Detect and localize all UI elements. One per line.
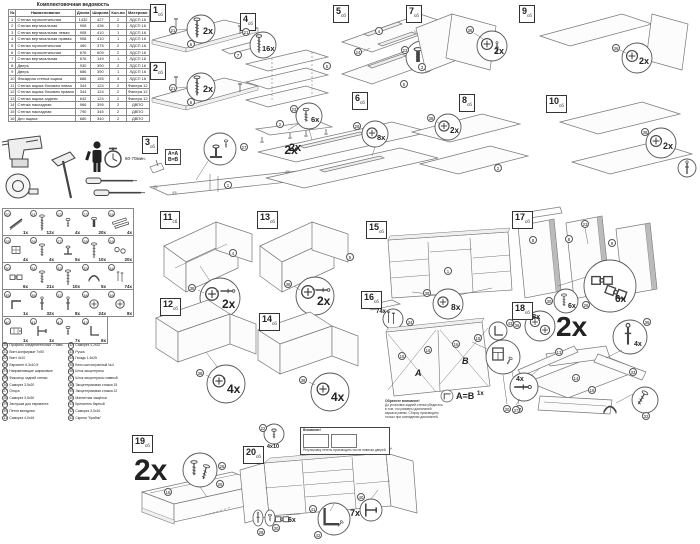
legend-name: Эксцентриковая стяжка 12 xyxy=(75,389,117,393)
panel xyxy=(256,121,332,135)
drill-icon xyxy=(2,136,42,167)
rod-icon xyxy=(10,219,22,230)
table-cell: ЛДСП 16 xyxy=(126,29,149,36)
legend-item: 43Скрепа "Крабик" xyxy=(68,415,134,422)
pin-head xyxy=(174,18,177,19)
legend-item: 32Саморез 4,2х32 xyxy=(68,342,134,349)
legend-num: 28 xyxy=(2,395,8,402)
hardware-qty: 8x xyxy=(127,311,132,316)
hardware-legend-col1: 20Профиль соединительный 776мм.21Винт-ко… xyxy=(2,342,68,421)
table-cell: 10 xyxy=(9,75,16,82)
panel xyxy=(386,453,417,513)
hardware-cell: 3632x xyxy=(29,290,56,317)
parts-table-grid: №НаименованиеДлинаШиринаКол-воМатериал 1… xyxy=(8,9,150,122)
legend-num: 41 xyxy=(68,401,74,408)
legend-name: Профиль соединительный 776мм. xyxy=(9,343,63,347)
line xyxy=(206,352,218,368)
qty-label: 4x xyxy=(516,376,524,383)
hardware-cell: 401x xyxy=(3,317,30,344)
legend-num: 33 xyxy=(68,349,74,356)
qty-label: 8x xyxy=(532,312,541,321)
table-row: 14Стенка накладная9663952ДВПО xyxy=(9,102,150,109)
table-cell: 149 xyxy=(91,56,110,63)
qty-label: A xyxy=(414,368,422,378)
table-cell: 1 xyxy=(110,69,127,76)
hardware-qty: 12x xyxy=(46,230,54,235)
legend-name: Скрепа "Крабик" xyxy=(75,416,101,420)
hardware-qty: 1x xyxy=(23,311,28,316)
table-cell: 908 xyxy=(75,36,91,43)
table-cell: 3 xyxy=(9,29,16,36)
table-cell: 344 xyxy=(75,82,91,89)
hardware-qty: 1x xyxy=(23,230,28,235)
hardware-qty: 21x xyxy=(46,284,54,289)
parts-col-header: Кол-во xyxy=(110,10,127,17)
hardware-legend: 20Профиль соединительный 776мм.21Винт-ко… xyxy=(2,342,138,421)
panel xyxy=(230,314,256,354)
table-cell: Дверь xyxy=(16,62,75,69)
hardware-qty: 4x xyxy=(127,230,132,235)
hardware-cell: 378x xyxy=(55,290,82,317)
hammer-icon xyxy=(52,152,75,198)
qty-label: 4x xyxy=(634,341,642,348)
hardware-cell: 3824x xyxy=(81,290,108,317)
legend-item: 29Заглушка для евровинта xyxy=(2,401,68,408)
screwdriver-flat-icon xyxy=(94,190,145,196)
hardware-cell: 2112x xyxy=(29,209,56,236)
table-row: 8Дверь9303902ЛДСП 16 xyxy=(9,62,150,69)
table-cell: 14 xyxy=(9,102,16,109)
hardware-cell: 275x xyxy=(55,236,82,263)
line xyxy=(177,87,188,88)
table-cell: Стенка ящика боковая правая xyxy=(16,89,75,96)
qty-label: 6x xyxy=(615,294,627,305)
legend-name: Саморез 4,0х16 xyxy=(9,416,34,420)
pin-head xyxy=(238,83,241,84)
table-cell: 340 xyxy=(91,115,110,122)
legend-item: 31Саморез 4,0х16 xyxy=(2,415,68,422)
table-cell: 966 xyxy=(75,102,91,109)
table-cell: 686 xyxy=(75,75,91,82)
legend-num: 35 xyxy=(68,362,74,369)
table-cell: 375 xyxy=(91,42,110,49)
hardware-cell: 411x xyxy=(29,317,56,344)
legend-name: Ключ шестигранный №4 xyxy=(75,363,113,367)
legend-name: Петля вкладная xyxy=(9,409,34,413)
table-cell: Стенка вертикальная xyxy=(16,56,75,63)
callout-circle xyxy=(318,503,350,535)
screwdriver-cross-icon xyxy=(86,178,137,184)
legend-num: 40 xyxy=(68,395,74,402)
table-cell: 395 xyxy=(91,102,110,109)
cam-icon xyxy=(90,300,99,308)
qty-label: 2x xyxy=(134,454,168,487)
screw-long-icon xyxy=(91,243,96,258)
legend-name: Шток эксцентрика главный xyxy=(75,376,117,380)
hardware-cell: 335x xyxy=(81,263,108,290)
handle-icon xyxy=(89,276,99,282)
table-cell: ЛДСП 16 xyxy=(126,75,149,82)
legend-name: Магнитная защёлка xyxy=(75,396,106,400)
panel xyxy=(538,396,612,414)
pin-head xyxy=(238,25,241,26)
qty-label: 2x xyxy=(663,141,673,151)
pin-icon xyxy=(40,297,44,310)
hinge-icon xyxy=(10,275,22,280)
hardware-cell: 398x xyxy=(107,290,134,317)
legend-num: 37 xyxy=(68,375,74,382)
legend-name: Крепитель барный xyxy=(75,402,104,406)
table-cell: 345 xyxy=(91,108,110,115)
table-cell: ЛДСП 16 xyxy=(126,49,149,56)
hardware-cell: 201x xyxy=(3,209,30,236)
table-row: 10Фасадная стенка ящика6861553ЛДСП 16 xyxy=(9,75,150,82)
panel xyxy=(388,232,512,298)
legend-num: 22 xyxy=(2,355,8,362)
table-cell: 11 xyxy=(9,82,16,89)
qty-label: 6x xyxy=(568,303,576,310)
legend-name: Винт-конфирмат 7х50 xyxy=(9,350,44,354)
table-cell: 680 xyxy=(75,115,91,122)
legend-name: Ручка xyxy=(75,350,84,354)
parts-table: Комплектовочная ведомость №НаименованиеД… xyxy=(8,2,138,122)
table-cell: 155 xyxy=(91,75,110,82)
euro-icon xyxy=(91,217,96,227)
legend-num: 24 xyxy=(2,368,8,375)
legend-name: Эксцентриковая стяжка 15 xyxy=(75,383,117,387)
parts-table-head: №НаименованиеДлинаШиринаКол-воМатериал xyxy=(9,10,150,17)
table-cell: 908 xyxy=(75,29,91,36)
pin-head xyxy=(174,76,177,77)
hardware-qty: 4x xyxy=(75,230,80,235)
hardware-cell: 244x xyxy=(107,209,134,236)
table-cell: Фанера 12 xyxy=(126,82,149,89)
panel xyxy=(646,14,688,70)
parts-col-header: Наименование xyxy=(16,10,75,17)
table-cell: 609 xyxy=(91,49,110,56)
table-cell: ЛДСП 16 xyxy=(126,42,149,49)
qty-label: 8x xyxy=(377,133,386,142)
hardware-cell: 3121x xyxy=(29,263,56,290)
table-cell: 1432 xyxy=(75,16,91,23)
table-row: 11Стенка ящика боковая левая3441242Фанер… xyxy=(9,82,150,89)
hardware-cell: 3474x xyxy=(107,263,134,290)
legend-num: 21 xyxy=(2,349,8,356)
table-cell: 12 xyxy=(9,89,16,96)
cam-icon xyxy=(116,300,125,308)
qty-label: 2x xyxy=(556,311,588,342)
screw-small-icon xyxy=(66,218,70,227)
hinge-icon xyxy=(275,517,288,522)
hardware-qty: 5x xyxy=(75,257,80,262)
hardware-legend-col2: 32Саморез 4,2х3233Ручка34Гвоздь 1,6х2535… xyxy=(68,342,134,421)
table-cell: Стенка накладная xyxy=(16,102,75,109)
legend-name: Саморез 3,5х20 xyxy=(9,383,34,387)
legend-name: Заглушка для евровинта xyxy=(9,402,48,406)
parts-col-header: Материал xyxy=(126,10,149,17)
table-cell: Стенка ящика задняя xyxy=(16,95,75,102)
table-cell: 930 xyxy=(75,62,91,69)
table-cell: 2 xyxy=(110,49,127,56)
table-cell: 390 xyxy=(91,69,110,76)
legend-item: 24Направляющие шариковые xyxy=(2,368,68,375)
confirmat-icon xyxy=(40,215,45,231)
hardware-cell: 254x xyxy=(3,236,30,263)
legend-item: 21Винт-конфирмат 7х50 xyxy=(2,349,68,356)
legend-num: 29 xyxy=(2,401,8,408)
legend-num: 23 xyxy=(2,362,8,369)
table-cell: 2 xyxy=(110,102,127,109)
table-row: 4Стенка вертикальная правая9084101ЛДСП 1… xyxy=(9,36,150,43)
screw-long-icon xyxy=(65,270,70,285)
table-cell: 436 xyxy=(91,23,110,30)
callout-circle xyxy=(441,390,453,402)
table-cell: 13 xyxy=(9,95,16,102)
foot-glyph xyxy=(325,133,328,135)
line xyxy=(309,129,312,140)
table-cell: ЛДСП 16 xyxy=(126,69,149,76)
table-cell: ЛДСП 16 xyxy=(126,56,149,63)
table-cell: Стенка накладная xyxy=(16,108,75,115)
hardware-qty: 5x xyxy=(101,284,106,289)
block-icon xyxy=(12,247,20,254)
table-cell: 460 xyxy=(75,42,91,49)
legend-num: 31 xyxy=(2,415,8,422)
table-row: 2Стенка вертикальная9084362ЛДСП 16 xyxy=(9,23,150,30)
hardware-cell: 306x xyxy=(3,263,30,290)
table-cell: ЛДСП 16 xyxy=(126,36,149,43)
table-row: 7Стенка вертикальная6761491ЛДСП 16 xyxy=(9,56,150,63)
legend-name: Винт 4х10 xyxy=(9,356,25,360)
nails-icon xyxy=(117,272,124,282)
legend-item: 37Шток эксцентрика главный xyxy=(68,375,134,382)
table-cell: 2 xyxy=(110,23,127,30)
legend-item: 26Саморез 3,5х20 xyxy=(2,382,68,389)
callout-circle xyxy=(204,133,236,165)
panel xyxy=(332,326,358,366)
legend-item: 23Евровинт 6,3х10,5 xyxy=(2,362,68,369)
table-cell: ЛДСП 16 xyxy=(126,23,149,30)
assembly-instruction-sheet: Комплектовочная ведомость №НаименованиеД… xyxy=(0,0,700,544)
table-cell: 16 xyxy=(9,115,16,122)
legend-name: Евровинт 6,3х10,5 xyxy=(9,363,38,367)
table-cell: 2 xyxy=(110,16,127,23)
table-cell: 642 xyxy=(75,95,91,102)
table-cell: 15 xyxy=(9,108,16,115)
hardware-cell: 2920x xyxy=(107,236,134,263)
bracket-icon xyxy=(38,326,46,336)
legend-name: Саморез 4,2х32 xyxy=(75,343,100,347)
qty-label: 1x xyxy=(477,391,484,397)
legend-num: 39 xyxy=(68,388,74,395)
table-cell: 1 xyxy=(110,56,127,63)
legend-item: 36Шток эксцентрика xyxy=(68,368,134,375)
legend-num: 38 xyxy=(68,382,74,389)
hardware-qty: 20x xyxy=(124,257,132,262)
table-cell: ДВПО xyxy=(126,108,149,115)
legend-num: 32 xyxy=(68,342,74,349)
line xyxy=(616,394,633,403)
legend-num: 25 xyxy=(2,375,8,382)
table-cell: 676 xyxy=(75,56,91,63)
legend-item: 34Гвоздь 1,6х25 xyxy=(68,355,134,362)
table-cell: 2 xyxy=(110,108,127,115)
legend-num: 27 xyxy=(2,388,8,395)
qty-label: B xyxy=(462,356,469,366)
line xyxy=(177,29,188,30)
foot-glyph xyxy=(289,137,292,139)
legend-item: 41Крепитель барный xyxy=(68,401,134,408)
hardware-cell: 427x xyxy=(55,317,82,344)
legend-item: 42Саморез 3,0х16 xyxy=(68,408,134,415)
hardware-cell: 351x xyxy=(3,290,30,317)
table-cell: 410 xyxy=(91,36,110,43)
hardware-qty: 10x xyxy=(98,257,106,262)
hardware-qty: 6x xyxy=(23,284,28,289)
table-cell: 7 xyxy=(9,56,16,63)
qty-label: 2x xyxy=(222,297,236,311)
foot-glyph xyxy=(305,135,308,137)
legend-num: 43 xyxy=(68,415,74,422)
table-cell: 2 xyxy=(110,89,127,96)
table-cell: 1 xyxy=(110,29,127,36)
callout-circle xyxy=(489,322,507,340)
qty-label: 2x xyxy=(639,56,649,66)
panel xyxy=(420,146,528,174)
table-cell: Фасадная стенка ящика xyxy=(16,75,75,82)
legend-name: Опора xyxy=(9,389,19,393)
legend-name: Фиксатор задней стенки xyxy=(9,376,47,380)
panel xyxy=(364,300,400,310)
table-cell: Стенка горизонтальная xyxy=(16,42,75,49)
latch-icon xyxy=(11,328,22,334)
legend-num: 30 xyxy=(2,408,8,415)
table-row: 5Стенка горизонтальная4603752ЛДСП 16 xyxy=(9,42,150,49)
legend-item: 25Фиксатор задней стенки xyxy=(2,375,68,382)
legend-name: Направляющие шариковые xyxy=(9,369,52,373)
legend-name: Саморез 3,0х16 xyxy=(75,409,100,413)
table-cell: Дно ящика xyxy=(16,115,75,122)
hardware-qty: 32x xyxy=(46,311,54,316)
hardware-qty: 24x xyxy=(98,311,106,316)
qty-label: 2x xyxy=(317,294,331,308)
qty-label: 4x xyxy=(331,390,345,404)
rails-icon xyxy=(112,218,128,228)
assembly-time-label: 60-70мин. xyxy=(125,156,146,161)
table-cell: 8 xyxy=(9,62,16,69)
table-cell: 4 xyxy=(9,36,16,43)
table-cell: 676 xyxy=(75,49,91,56)
table-cell: ДВПО xyxy=(126,102,149,109)
hexkey-icon xyxy=(12,301,21,309)
screw-icon xyxy=(39,271,44,283)
table-cell: 344 xyxy=(75,89,91,96)
table-cell: 1 xyxy=(9,16,16,23)
table-cell: Фанера 12 xyxy=(126,95,149,102)
hardware-qty: 20x xyxy=(98,230,106,235)
table-cell: 410 xyxy=(91,29,110,36)
legend-item: 27Опора xyxy=(2,388,68,395)
table-row: 16Дно ящика6803402ДВПО xyxy=(9,115,150,122)
table-row: 9Дверь6863901ЛДСП 16 xyxy=(9,69,150,76)
panel xyxy=(528,207,562,218)
hardware-cell: 224x xyxy=(55,209,82,236)
timer-icon xyxy=(105,148,121,168)
parts-col-header: № xyxy=(9,10,16,17)
tape-measure-icon xyxy=(6,174,38,198)
qty-label: A=B xyxy=(456,391,475,401)
table-cell: 2 xyxy=(110,115,127,122)
table-cell: 390 xyxy=(91,62,110,69)
table-cell: 1 xyxy=(110,36,127,43)
table-cell: 3 xyxy=(110,75,127,82)
hardware-cell: 436x xyxy=(81,317,108,344)
table-cell: ДВПО xyxy=(126,115,149,122)
table-cell: 2 xyxy=(110,82,127,89)
panel xyxy=(246,86,328,107)
table-cell: 790 xyxy=(75,108,91,115)
table-cell: 2 xyxy=(9,23,16,30)
qty-label: 4x xyxy=(227,382,241,396)
line xyxy=(196,161,208,180)
legend-item: 28Саморез 3,5х30 xyxy=(2,395,68,402)
legend-item: 39Эксцентриковая стяжка 12 xyxy=(68,388,134,395)
tools-illustration xyxy=(0,128,165,208)
screw-small-icon xyxy=(66,326,70,335)
table-row: 3Стенка вертикальная левая9084101ЛДСП 16 xyxy=(9,29,150,36)
hardware-grid: 201x2112x224x2320x244x254x264x275x2810x2… xyxy=(2,208,134,344)
hardware-qty: 10x xyxy=(72,284,80,289)
table-cell: 6 xyxy=(9,49,16,56)
table-cell: Стенка вертикальная правая xyxy=(16,36,75,43)
legend-item: 40Магнитная защёлка xyxy=(68,395,134,402)
caps-icon xyxy=(115,247,125,253)
table-cell: Фанера 12 xyxy=(126,89,149,96)
table-row: 13Стенка ящика задняя6421242Фанера 12 xyxy=(9,95,150,102)
legend-name: Саморез 3,5х30 xyxy=(9,396,34,400)
hardware-cell: 3210x xyxy=(55,263,82,290)
legend-num: 34 xyxy=(68,355,74,362)
parts-col-header: Ширина xyxy=(91,10,110,17)
table-cell: 427 xyxy=(91,16,110,23)
panel xyxy=(412,114,520,142)
table-cell: Стенка вертикальная левая xyxy=(16,29,75,36)
qty-label: 6x xyxy=(288,517,296,524)
table-row: 1Стенка горизонтальная14324272ЛДСП 16 xyxy=(9,16,150,23)
qty-label: 8x xyxy=(451,302,461,312)
hardware-cell: 264x xyxy=(29,236,56,263)
foot-glyph xyxy=(261,141,264,143)
table-cell: Стенка горизонтальная xyxy=(16,16,75,23)
table-cell: ЛДСП 16 xyxy=(126,16,149,23)
qty-label: 2x xyxy=(494,46,504,56)
legend-item: 33Ручка xyxy=(68,349,134,356)
qty-label: 2x xyxy=(203,84,213,94)
legend-name: Шток эксцентрика xyxy=(75,369,103,373)
table-cell: Стенка ящика боковая левая xyxy=(16,82,75,89)
table-row: 15Стенка накладная7903452ДВПО xyxy=(9,108,150,115)
hardware-qty: 8x xyxy=(75,311,80,316)
qty-label: 7x xyxy=(350,508,360,518)
parts-table-title: Комплектовочная ведомость xyxy=(8,2,138,8)
panel xyxy=(540,14,652,46)
legend-num: 26 xyxy=(2,382,8,389)
screw-icon xyxy=(39,244,44,256)
qty-label: 16x xyxy=(262,44,275,53)
table-cell: 2 xyxy=(110,42,127,49)
callout-circle xyxy=(183,453,217,487)
table-cell: 9 xyxy=(9,69,16,76)
